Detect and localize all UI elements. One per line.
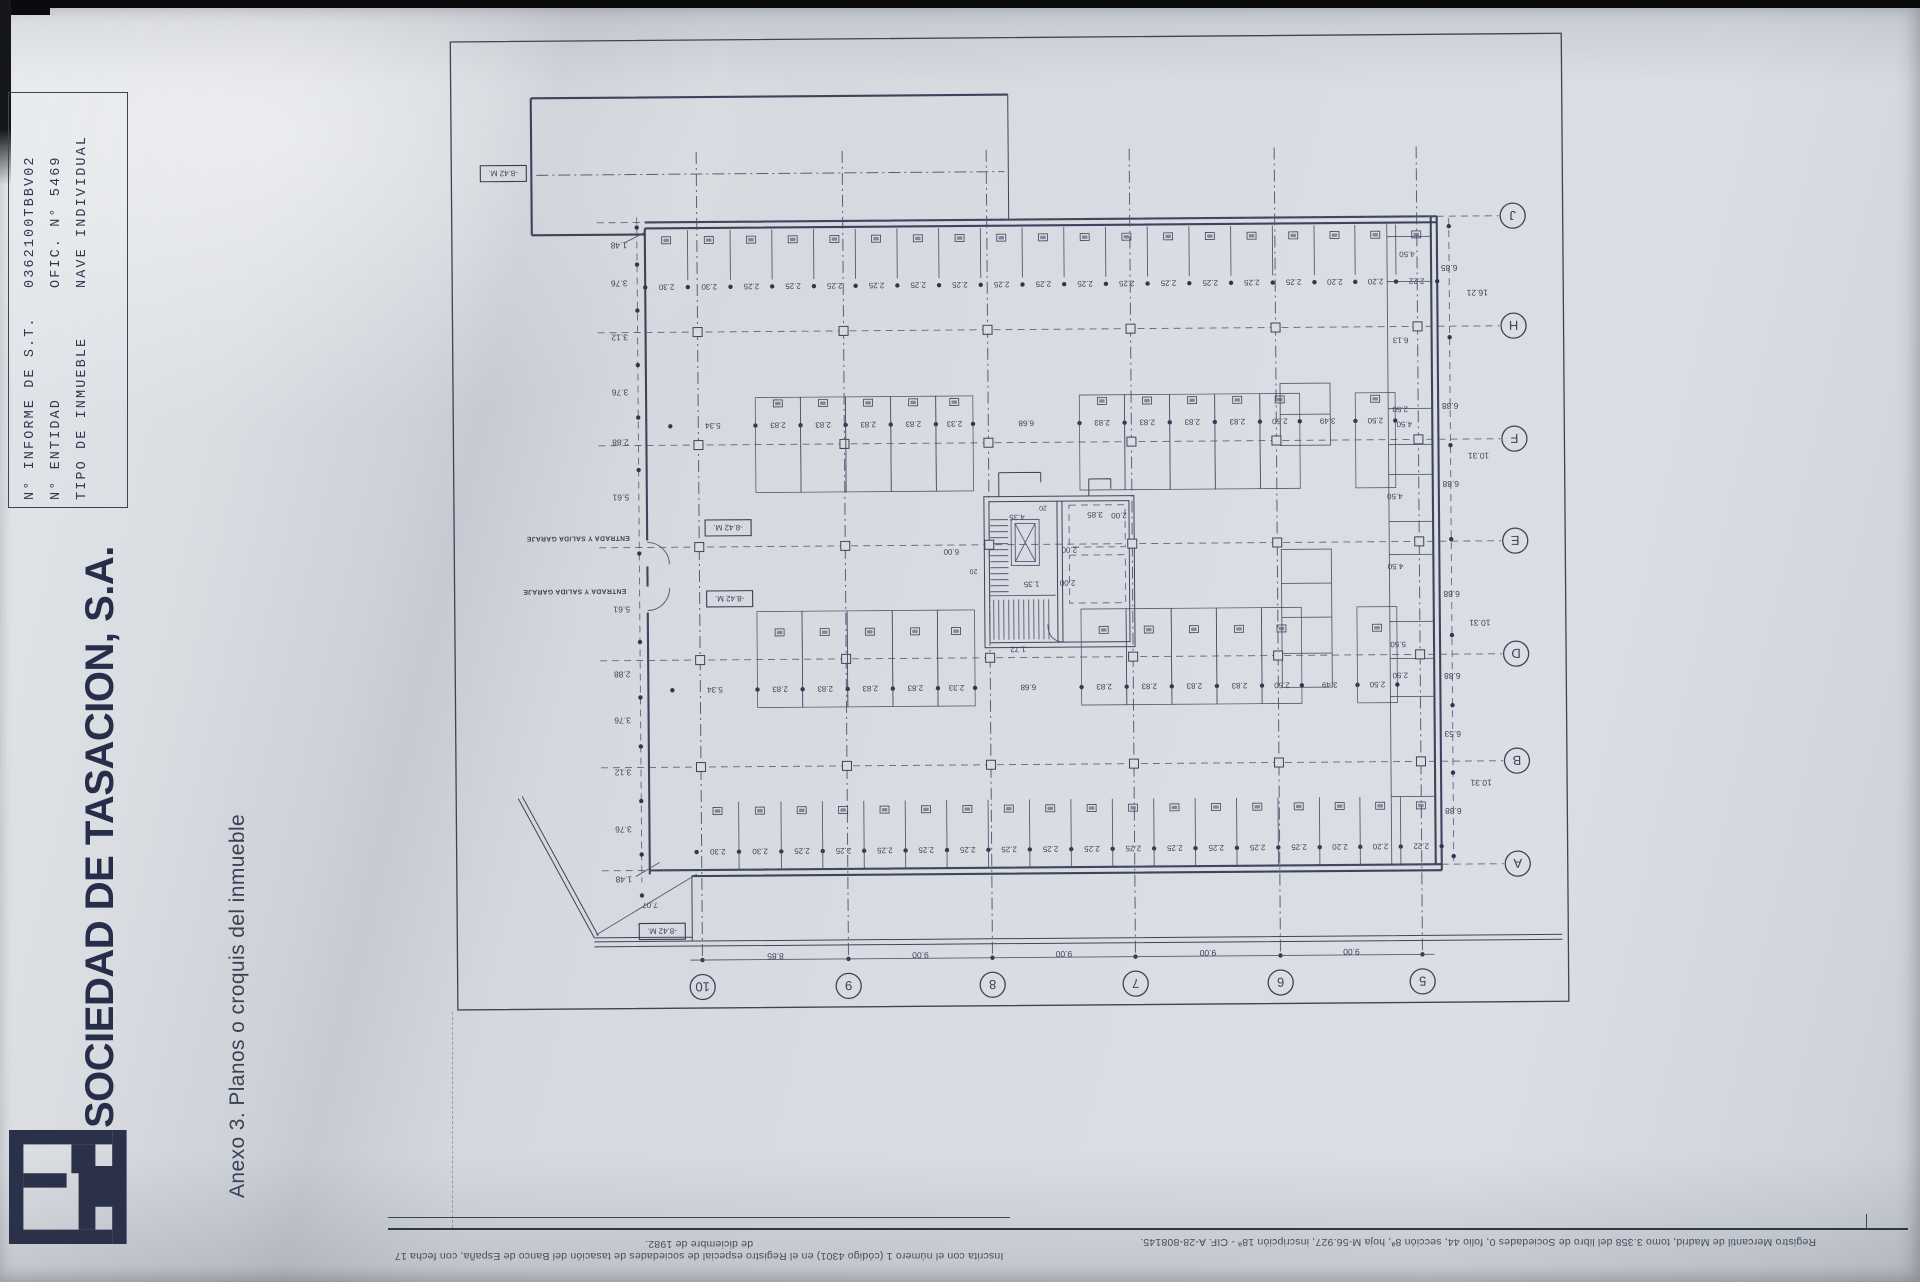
stall-number-smudge	[867, 630, 873, 633]
grid-node	[1128, 539, 1137, 548]
right-outer-dimension: 16.21	[1466, 288, 1488, 298]
stall-dimension: 2.83	[1184, 417, 1200, 426]
stall-dimension: 2.25	[1208, 843, 1224, 852]
bottom-dimension: 9.00	[1343, 947, 1360, 957]
dimension-line	[1400, 797, 1401, 865]
dimension-line	[739, 802, 740, 870]
misc-dimension: 1.72	[1010, 645, 1026, 654]
dimension-dot	[636, 468, 640, 472]
entrance-label: ENTRADA Y SALIDA GARAJE	[523, 587, 626, 595]
stall-number-smudge	[1207, 234, 1213, 237]
stall-number-smudge	[1213, 805, 1219, 808]
stall-dimension: 2.25	[794, 846, 810, 855]
dimension-dot	[1449, 537, 1453, 541]
stall-dimension: 2.33	[948, 683, 964, 692]
dimension-dot	[639, 799, 643, 803]
dimension-dot	[1062, 282, 1066, 286]
elevation-label: -8.42 M.	[715, 594, 744, 603]
dimension-dot	[1450, 633, 1454, 637]
dimension-dot	[1020, 282, 1024, 286]
dimension-line	[696, 152, 702, 964]
stall-dimension: 5.34	[707, 685, 723, 694]
stall-dimension: 2.25	[743, 282, 759, 291]
stall-number-smudge	[757, 809, 763, 812]
stall-number-smudge	[1006, 807, 1012, 810]
stall-number-smudge	[748, 238, 754, 241]
dimension-dot	[638, 695, 642, 699]
misc-dimension: 6.13	[1392, 336, 1408, 345]
stall-dimension: 2.25	[1125, 844, 1141, 853]
stall-dimension: 2.25	[877, 846, 893, 855]
dimension-dot	[979, 283, 983, 287]
stall-number-smudge	[1146, 628, 1152, 631]
grid-node	[842, 761, 851, 770]
grid-row-label: H	[1509, 318, 1519, 333]
stall-dimension: 2.25	[785, 281, 801, 290]
grid-node	[1273, 538, 1282, 547]
dimension-dot	[1450, 703, 1454, 707]
stall-dimension: 2.83	[1096, 682, 1112, 691]
stall-number-smudge	[1249, 234, 1255, 237]
stall-dimension: 2.25	[835, 846, 851, 855]
stall-number-smudge	[1418, 804, 1424, 807]
dimension-line	[781, 801, 782, 869]
stall-dimension: 2.20	[1332, 842, 1348, 851]
grid-node	[984, 438, 993, 447]
grid-column-label: 5	[1419, 974, 1426, 989]
stall-dimension: 2.25	[1291, 842, 1307, 851]
stall-dimension: 2.20	[1372, 842, 1388, 851]
left-dimension: 1.48	[610, 241, 627, 251]
left-dimension: 3.76	[614, 716, 631, 726]
stall-dimension: 3.49	[1321, 680, 1337, 689]
stall-number-smudge	[1130, 806, 1136, 809]
dimension-line	[1112, 799, 1113, 867]
stall-dimension: 2.50	[1369, 680, 1385, 689]
entrance-label: ENTRADA Y SALIDA GARAJE	[526, 534, 629, 542]
stall-number-smudge	[663, 239, 669, 242]
stall-number-smudge	[1101, 628, 1107, 631]
stall-dimension: 2.83	[860, 420, 876, 429]
grid-node	[1274, 758, 1283, 767]
dimension-dot	[973, 686, 977, 690]
dimension-dot	[1104, 282, 1108, 286]
stall-dimension: 2.83	[862, 684, 878, 693]
left-dimension: 3.76	[611, 388, 628, 398]
dimension-dot	[635, 262, 639, 266]
dimension-dot	[728, 285, 732, 289]
grid-node	[696, 763, 705, 772]
dimension-dot	[639, 852, 643, 856]
dimension-dot	[770, 284, 774, 288]
elevation-label: -8.42 M.	[489, 169, 518, 178]
stall-number-smudge	[1255, 805, 1261, 808]
stall-number-smudge	[790, 238, 796, 241]
dimension-line	[1274, 148, 1280, 960]
grid-node	[1274, 651, 1283, 660]
misc-dimension: 4.50	[1387, 562, 1403, 571]
dimension-dot	[937, 283, 941, 287]
parking-stall	[1079, 395, 1125, 490]
grid-node	[841, 541, 850, 550]
floor-plan: 10987658.859.009.009.009.00JHFEDBA6.856.…	[0, 0, 1920, 1282]
misc-dimension: 20	[1039, 504, 1047, 511]
grid-node	[986, 760, 995, 769]
dimension-dot	[643, 285, 647, 289]
dimension-line	[842, 151, 848, 963]
stall-number-smudge	[1374, 626, 1380, 629]
dimension-dot	[1298, 419, 1302, 423]
stall-number-smudge	[1172, 806, 1178, 809]
grid-row-label: F	[1510, 431, 1518, 446]
grid-node	[693, 328, 702, 337]
dimension-dot	[686, 285, 690, 289]
grid-node	[985, 540, 994, 549]
grid-node	[1126, 324, 1135, 333]
dimension-dot	[1300, 683, 1304, 687]
dimension-line	[1237, 798, 1238, 866]
left-dimension: 3.76	[615, 825, 632, 835]
stall-dimension: 2.25	[1160, 278, 1176, 287]
grid-node	[1416, 757, 1425, 766]
stall-dimension: 2.83	[1139, 418, 1155, 427]
stall-dimension: 2.83	[770, 420, 786, 429]
grid-column-label: 6	[1277, 975, 1284, 990]
dimension-dot	[636, 415, 640, 419]
stall-dimension: 2.25	[1202, 278, 1218, 287]
dimension-dot	[1312, 280, 1316, 284]
stall-number-smudge	[832, 237, 838, 240]
left-dimension: 2.88	[612, 438, 629, 448]
grid-row-label: E	[1511, 533, 1520, 548]
stall-dimension: 2.33	[946, 419, 962, 428]
grid-column-label: 9	[845, 978, 852, 993]
stall-dimension: 2.30	[752, 847, 768, 856]
dimension-dot	[1394, 279, 1398, 283]
stall-number-smudge	[1099, 399, 1105, 402]
stall-dimension: 2.20	[1367, 277, 1383, 286]
grid-row-label: A	[1513, 856, 1522, 871]
stall-dimension: 2.25	[1035, 279, 1051, 288]
dimension-line	[947, 800, 948, 868]
stall-dimension: 2.83	[1141, 682, 1157, 691]
stall-dimension: 2.83	[905, 419, 921, 428]
parking-stall	[891, 396, 937, 491]
grid-row-label: B	[1513, 753, 1522, 768]
stall-dimension: 2.25	[1042, 844, 1058, 853]
elevation-label: -8.42 M.	[648, 926, 677, 935]
stall-dimension: 2.83	[1231, 681, 1247, 690]
fold-mark	[452, 1012, 453, 1228]
stall-dimension: 2.25	[1084, 844, 1100, 853]
stall-dimension: 2.25	[918, 845, 934, 854]
isolated-stall-groups	[1280, 383, 1332, 687]
grid-node	[1127, 437, 1136, 446]
stall-number-smudge	[882, 808, 888, 811]
building-walls	[645, 216, 1442, 876]
dimension-line	[1360, 797, 1361, 865]
stall-number-smudge	[777, 631, 783, 634]
stall-dimension: 2.83	[817, 684, 833, 693]
stall-number-smudge	[1040, 236, 1046, 239]
right-inner-dimension: 6.88	[1443, 589, 1460, 599]
dimension-dot	[1353, 280, 1357, 284]
grid-column-label: 7	[1132, 976, 1139, 991]
dimension-line	[905, 800, 906, 868]
grid-row-label: D	[1511, 646, 1521, 661]
dimension-line	[1195, 798, 1196, 866]
grid-node	[1272, 436, 1281, 445]
footer-registry-left: Inscrita con el número 1 (código 4301) e…	[388, 1238, 1010, 1262]
stall-dimension: 2.25	[952, 280, 968, 289]
stall-dimension: 2.25	[1077, 279, 1093, 288]
dimension-dot	[1439, 844, 1443, 848]
grid-column-label: 10	[695, 979, 710, 994]
stall-dimension: 2.25	[1244, 278, 1260, 287]
dimension-dot	[635, 225, 639, 229]
dimension-dot	[1447, 224, 1451, 228]
stall-number-smudge	[715, 809, 721, 812]
stall-number-smudge	[1372, 397, 1378, 400]
dimension-line	[1154, 798, 1155, 866]
misc-dimension: 1.35	[1023, 579, 1039, 588]
grid-node	[1129, 759, 1138, 768]
dimension-dot	[1451, 770, 1455, 774]
stall-dimension: 2.50	[1274, 681, 1290, 690]
dimension-dot	[637, 551, 641, 555]
grid-node	[696, 656, 705, 665]
right-inner-dimension: 6.88	[1442, 479, 1459, 489]
stall-dimension: 2.30	[709, 847, 725, 856]
right-inner-dimension: 6.88	[1442, 401, 1459, 411]
misc-dimension: 7.07	[642, 901, 658, 910]
grid-node	[1129, 652, 1138, 661]
stall-number-smudge	[1047, 807, 1053, 810]
misc-dimension: 6.00	[943, 547, 959, 556]
stall-dimension: 2.50	[1367, 416, 1383, 425]
grid-node	[839, 326, 848, 335]
grid-node	[694, 441, 703, 450]
stall-number-smudge	[1082, 235, 1088, 238]
right-inner-dimension: 6.85	[1441, 263, 1458, 273]
stall-dimension: 2.25	[993, 280, 1009, 289]
dimension-dot	[638, 640, 642, 644]
bottom-dimension: 9.00	[912, 950, 929, 960]
dimension-dot	[636, 363, 640, 367]
dimension-dot	[1447, 335, 1451, 339]
dimension-dot	[1451, 854, 1455, 858]
stall-number-smudge	[1089, 806, 1095, 809]
stall-dimension: 2.25	[1166, 843, 1182, 852]
misc-dimension: 4.50	[1396, 420, 1412, 429]
stall-dimension: 2.22	[1413, 841, 1429, 850]
misc-dimension: 4.35	[1009, 513, 1025, 522]
dimension-dot	[812, 284, 816, 288]
misc-dimension: 2.50	[1392, 671, 1408, 680]
stall-number-smudge	[912, 630, 918, 633]
stall-number-smudge	[1279, 627, 1285, 630]
misc-dimension: 2.00	[1061, 545, 1077, 554]
left-dimension: 3.76	[611, 279, 628, 289]
stall-dimension: 2.30	[701, 282, 717, 291]
dimension-line	[864, 801, 865, 869]
dimension-dot	[1435, 279, 1439, 283]
stall-number-smudge	[998, 236, 1004, 239]
dimension-dot	[640, 893, 644, 897]
stall-dimension: 2.25	[910, 280, 926, 289]
stall-number-smudge	[706, 238, 712, 241]
stall-number-smudge	[1413, 233, 1419, 236]
dimension-line	[1071, 799, 1072, 867]
stall-number-smudge	[799, 809, 805, 812]
stall-number-smudge	[1165, 235, 1171, 238]
stall-dimension: 2.50	[1272, 417, 1288, 426]
stall-number-smudge	[1234, 398, 1240, 401]
stall-number-smudge	[951, 400, 957, 403]
stall-dimension: 2.25	[1001, 845, 1017, 854]
stall-number-smudge	[1377, 804, 1383, 807]
dimension-line	[1319, 797, 1320, 865]
dimension-leaders	[625, 232, 660, 876]
dimension-line	[1449, 218, 1454, 866]
stall-number-smudge	[915, 237, 921, 240]
misc-dimension: 3.85	[1087, 510, 1103, 519]
stall-number-smudge	[957, 236, 963, 239]
dimension-line	[988, 800, 989, 868]
stall-dimension: 6.68	[1018, 419, 1034, 428]
stall-number-smudge	[910, 401, 916, 404]
stall-number-smudge	[1337, 804, 1343, 807]
dimension-dot	[1229, 281, 1233, 285]
stall-dimension: 2.25	[1118, 279, 1134, 288]
right-stall-strip	[1387, 222, 1436, 864]
stall-dimension: 2.83	[772, 684, 788, 693]
stall-number-smudge	[775, 402, 781, 405]
dimension-dot	[635, 308, 639, 312]
stall-number-smudge	[953, 629, 959, 632]
dimension-dot	[670, 688, 674, 692]
stall-number-smudge	[1124, 235, 1130, 238]
grid-node	[840, 439, 849, 448]
right-inner-dimension: 6.53	[1444, 729, 1461, 739]
grid-row-label: J	[1509, 208, 1516, 223]
stall-dimension: 2.25	[826, 281, 842, 290]
right-outer-dimension: 10.31	[1470, 778, 1492, 788]
stall-number-smudge	[873, 237, 879, 240]
stall-number-smudge	[865, 401, 871, 404]
dimension-line	[600, 654, 1502, 661]
footer-rule-thin	[388, 1217, 1010, 1218]
left-dimension: 2.88	[614, 670, 631, 680]
misc-dimension: 4.50	[1399, 250, 1415, 259]
right-outer-dimension: 10.31	[1468, 451, 1490, 461]
footer-rule	[388, 1228, 1908, 1230]
dimension-dot	[971, 422, 975, 426]
grid-node	[1415, 537, 1424, 546]
stall-dimension: 2.25	[1249, 843, 1265, 852]
stall-dimension: 3.49	[1319, 416, 1335, 425]
bottom-dimension: 8.85	[767, 951, 784, 961]
left-dimension: 5.61	[612, 493, 629, 503]
dimension-dot	[1187, 281, 1191, 285]
dimension-dot	[639, 744, 643, 748]
stall-number-smudge	[1296, 805, 1302, 808]
left-dimension: 3.12	[611, 333, 628, 343]
stall-number-smudge	[1191, 628, 1197, 631]
grid-node	[1413, 322, 1422, 331]
grid-node	[1271, 323, 1280, 332]
stall-number-smudge	[822, 630, 828, 633]
grid-node	[1414, 435, 1423, 444]
dimension-dot	[1145, 281, 1149, 285]
parking-stall	[1215, 394, 1261, 489]
grid-node	[1416, 650, 1425, 659]
dimension-dot	[694, 850, 698, 854]
stall-number-smudge	[1290, 234, 1296, 237]
grid-node	[986, 653, 995, 662]
dimension-dot	[1395, 682, 1399, 686]
grid-node	[983, 325, 992, 334]
dimension-dot	[1271, 280, 1275, 284]
misc-dimension: 20	[969, 567, 977, 574]
left-dimension: 3.12	[614, 768, 631, 778]
dimension-line	[598, 439, 1500, 446]
stall-number-smudge	[1372, 233, 1378, 236]
footer-tick	[1866, 1214, 1867, 1229]
stall-dimension: 2.30	[658, 282, 674, 291]
stall-dimension: 5.34	[704, 421, 720, 430]
stall-dimension: 2.25	[959, 845, 975, 854]
dimension-line	[637, 218, 642, 883]
grid-node	[842, 654, 851, 663]
grid-column-label: 8	[989, 977, 996, 992]
right-inner-dimension: 6.88	[1445, 806, 1462, 816]
misc-dimension: 4.50	[1387, 492, 1403, 501]
footer-registry-right: Registro Mercantil de Madrid, tomo 3.358…	[1048, 1236, 1908, 1248]
entrance-ramp-corridor	[531, 95, 1009, 236]
dimension-line	[1416, 146, 1422, 958]
dimension-line	[598, 326, 1500, 333]
stall-dimension: 2.83	[907, 683, 923, 692]
stall-number-smudge	[1236, 627, 1242, 630]
stall-dimension: 6.68	[1020, 683, 1036, 692]
left-dimension: 1.48	[615, 875, 632, 885]
dimension-dot	[1448, 443, 1452, 447]
dimension-line	[1029, 799, 1030, 867]
stall-dimension: 2.20	[1326, 277, 1342, 286]
stall-number-smudge	[923, 808, 929, 811]
bottom-dimension: 9.00	[1199, 948, 1216, 958]
stall-dimension: 2.83	[815, 420, 831, 429]
misc-dimension: 5.50	[1390, 640, 1406, 649]
stall-number-smudge	[1189, 399, 1195, 402]
stall-dimension: 2.83	[1186, 681, 1202, 690]
stall-number-smudge	[820, 401, 826, 404]
stall-number-smudge	[1144, 399, 1150, 402]
dimension-line	[601, 761, 1503, 768]
dimension-line	[822, 801, 823, 869]
right-inner-dimension: 6.88	[1444, 671, 1461, 681]
stall-number-smudge	[1332, 233, 1338, 236]
stall-number-smudge	[965, 807, 971, 810]
misc-dimension: 2.00	[1059, 578, 1075, 587]
dimension-dot	[895, 283, 899, 287]
stall-dimension: 2.22	[1408, 276, 1424, 285]
stall-number-smudge	[1277, 398, 1283, 401]
dimension-line	[1278, 798, 1279, 866]
parking-stall	[755, 397, 801, 492]
dimension-dot	[853, 284, 857, 288]
